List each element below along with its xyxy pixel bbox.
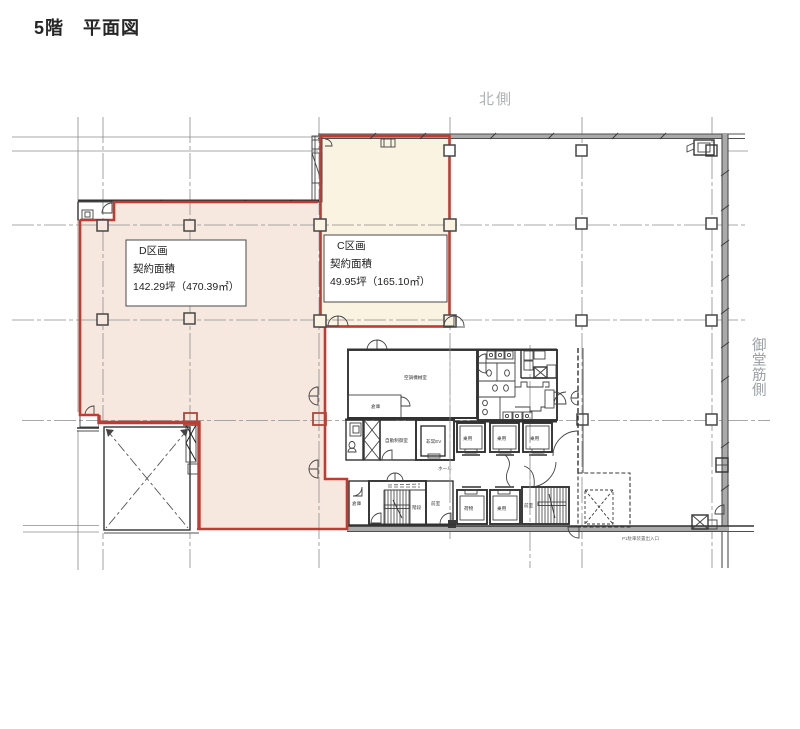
svg-text:乗用: 乗用 bbox=[497, 505, 507, 512]
svg-text:前室: 前室 bbox=[431, 500, 441, 507]
svg-text:乗用: 乗用 bbox=[530, 435, 540, 442]
svg-text:契約面積: 契約面積 bbox=[330, 257, 372, 270]
svg-text:49.95坪（165.10㎡）: 49.95坪（165.10㎡） bbox=[330, 275, 430, 288]
svg-text:北側: 北側 bbox=[479, 91, 513, 108]
svg-text:空調機械室: 空調機械室 bbox=[404, 374, 427, 381]
svg-text:乗用: 乗用 bbox=[463, 435, 473, 442]
svg-text:非常EV: 非常EV bbox=[426, 438, 442, 445]
svg-text:倉庫: 倉庫 bbox=[371, 403, 381, 410]
svg-text:契約面積: 契約面積 bbox=[133, 262, 175, 275]
svg-text:P1駐車装置出入口: P1駐車装置出入口 bbox=[622, 535, 659, 542]
svg-text:5階 平面図: 5階 平面図 bbox=[34, 18, 140, 38]
svg-text:自動制御室: 自動制御室 bbox=[385, 437, 408, 444]
svg-text:142.29坪（470.39㎡）: 142.29坪（470.39㎡） bbox=[133, 280, 239, 293]
svg-text:側: 側 bbox=[752, 382, 767, 399]
svg-text:C区画: C区画 bbox=[337, 240, 366, 252]
svg-text:御: 御 bbox=[752, 337, 767, 354]
svg-text:倉庫: 倉庫 bbox=[352, 500, 362, 507]
svg-text:堂: 堂 bbox=[752, 352, 767, 369]
svg-text:前室: 前室 bbox=[524, 502, 534, 509]
svg-text:筋: 筋 bbox=[752, 367, 767, 384]
svg-text:D区画: D区画 bbox=[139, 245, 168, 257]
svg-text:階段: 階段 bbox=[412, 504, 422, 511]
svg-text:荷物: 荷物 bbox=[464, 505, 474, 512]
svg-text:乗用: 乗用 bbox=[497, 435, 507, 442]
